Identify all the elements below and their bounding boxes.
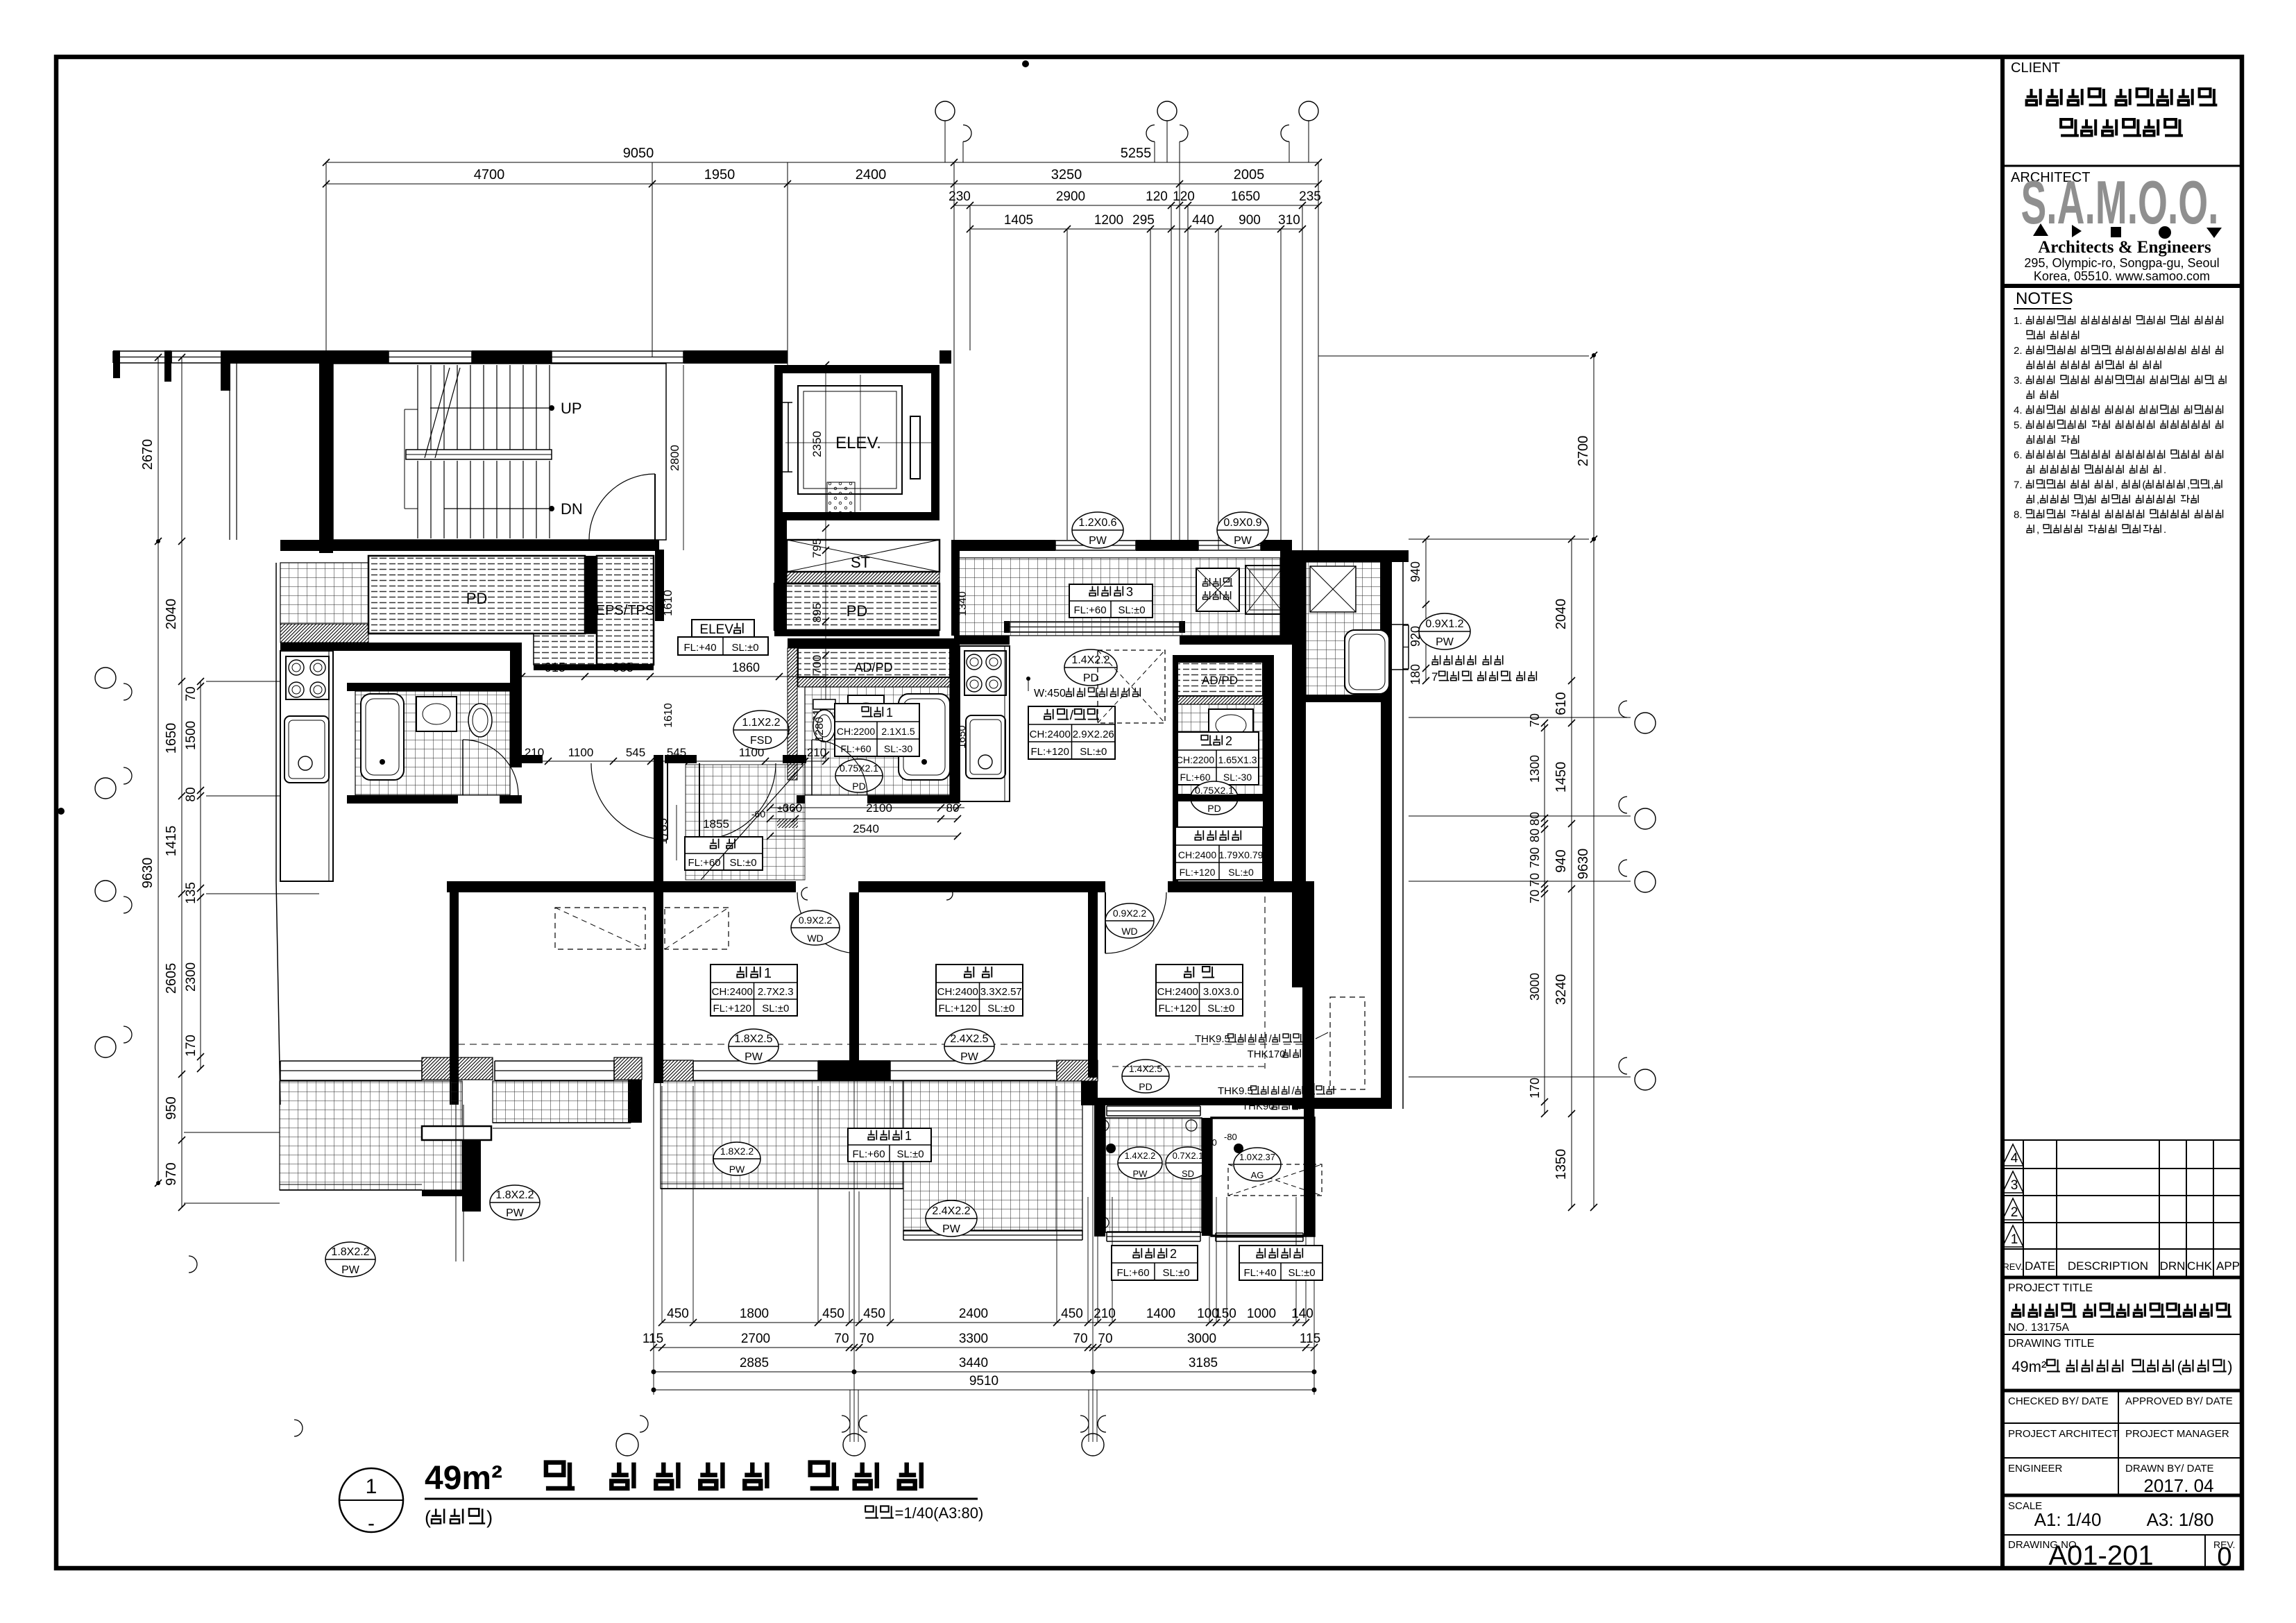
svg-text:NO. 13175A: NO. 13175A [2008,1322,2069,1334]
svg-text:295: 295 [1132,213,1155,228]
svg-text:1.4X2.2: 1.4X2.2 [1071,654,1109,666]
svg-text:1.: 1. [2014,315,2023,327]
svg-text:FL:+60: FL:+60 [1180,772,1211,783]
svg-text:THK170: THK170 [1248,1048,1286,1060]
svg-text:295, Olympic-ro, Songpa-gu, Se: 295, Olympic-ro, Songpa-gu, Seoul [2024,256,2219,270]
svg-text:=1/40(A3:80): =1/40(A3:80) [895,1504,984,1522]
svg-text:150: 150 [1214,1307,1236,1321]
svg-text:-: - [368,1512,375,1535]
svg-text:0.9X1.2: 0.9X1.2 [1425,618,1463,630]
svg-text:PW: PW [729,1164,745,1175]
svg-text:W:450: W:450 [1034,688,1066,699]
svg-text:CH:2200: CH:2200 [837,726,875,737]
svg-text:APP: APP [2216,1259,2240,1273]
svg-text:4700: 4700 [474,167,505,182]
svg-text:1.0X2.37: 1.0X2.37 [1239,1152,1275,1162]
svg-text:CH:2400: CH:2400 [1157,986,1198,998]
svg-text:,: , [2036,524,2039,536]
svg-text:2540: 2540 [853,822,879,835]
svg-text:1: 1 [2011,1232,2018,1247]
svg-text:1650: 1650 [164,723,179,754]
svg-text:1450: 1450 [1554,762,1569,793]
svg-text:0: 0 [2217,1543,2231,1572]
svg-text:DRN: DRN [2160,1259,2186,1273]
svg-text:2.1X1.5: 2.1X1.5 [881,726,915,737]
svg-text:450: 450 [1061,1307,1083,1321]
svg-text:70: 70 [184,686,198,701]
svg-text:A1: 1/40: A1: 1/40 [2034,1509,2102,1530]
svg-text:PD: PD [1207,803,1221,814]
svg-text:CH:2200: CH:2200 [1176,754,1214,765]
svg-text:PROJECT TITLE: PROJECT TITLE [2008,1282,2093,1294]
svg-text:2: 2 [1225,734,1232,748]
svg-text:3: 3 [2011,1178,2018,1193]
svg-text:0.7X2.1: 0.7X2.1 [1173,1150,1204,1161]
svg-text:FL:+60: FL:+60 [841,743,871,754]
svg-text:DESCRIPTION: DESCRIPTION [2068,1259,2148,1273]
svg-text:A3: 1/80: A3: 1/80 [2147,1509,2214,1530]
svg-text:1.4X2.2: 1.4X2.2 [1125,1150,1156,1161]
svg-text:2400: 2400 [856,167,887,182]
svg-text:SL:±0: SL:±0 [1207,1003,1234,1014]
svg-text:935: 935 [613,661,633,674]
svg-text:2.: 2. [2014,345,2023,357]
svg-text:S.A.M.O.O.: S.A.M.O.O. [2021,168,2219,237]
svg-text:230: 230 [949,189,971,204]
svg-text:80: 80 [1528,829,1542,842]
svg-text:9050: 9050 [623,146,654,161]
svg-text:9630: 9630 [1576,849,1591,880]
svg-text:-80: -80 [1224,1132,1237,1142]
svg-text:6.: 6. [2014,450,2023,461]
svg-text:1415: 1415 [164,826,179,857]
svg-text:3000: 3000 [1528,973,1542,1001]
svg-text:PW: PW [341,1264,360,1276]
svg-text:7.: 7. [2014,479,2023,491]
svg-text:CHK: CHK [2187,1259,2213,1273]
svg-text:PD: PD [852,781,865,792]
svg-text:70: 70 [859,1332,874,1346]
svg-text:795: 795 [810,538,824,558]
svg-text:3.: 3. [2014,375,2023,386]
svg-text:THK9.5: THK9.5 [1218,1085,1253,1097]
svg-text:970: 970 [164,1162,179,1185]
svg-text:): ) [486,1507,493,1528]
svg-text:/: / [1070,708,1074,723]
svg-text:PW: PW [1436,636,1454,648]
svg-text:FL:+40: FL:+40 [1243,1267,1276,1279]
svg-text:EPS/TPS: EPS/TPS [596,603,654,618]
svg-text:2040: 2040 [1554,599,1569,630]
svg-text:3.3X2.57: 3.3X2.57 [980,986,1022,998]
svg-text:FL:+60: FL:+60 [1116,1267,1149,1279]
svg-text:SD: SD [1182,1169,1194,1179]
svg-text:135: 135 [184,882,198,904]
svg-text:2885: 2885 [740,1356,769,1370]
svg-text:1860: 1860 [732,661,760,674]
svg-text:): ) [2084,494,2088,506]
svg-text:3: 3 [1126,585,1133,599]
svg-text:1.1X2.2: 1.1X2.2 [742,717,780,729]
svg-text:FL:+120: FL:+120 [1031,746,1069,758]
svg-text:1950: 1950 [704,167,735,182]
svg-text:235: 235 [1299,189,1321,204]
svg-text:,: , [2211,479,2213,491]
svg-text:PW: PW [942,1223,961,1235]
svg-text:940: 940 [1554,849,1569,872]
svg-text:PW: PW [1133,1169,1148,1179]
svg-text:1.8X2.2: 1.8X2.2 [720,1146,754,1157]
svg-text:REV.: REV. [2002,1261,2023,1272]
svg-text:3000: 3000 [1187,1332,1216,1346]
svg-text:180: 180 [1409,664,1422,685]
svg-text:CH:2400: CH:2400 [1030,729,1071,740]
svg-text:895: 895 [810,603,824,622]
svg-text:1: 1 [886,706,893,720]
svg-text:FL:+60: FL:+60 [852,1148,885,1160]
svg-text:DRAWING TITLE: DRAWING TITLE [2008,1338,2094,1350]
svg-text:545: 545 [626,746,645,759]
svg-text:70: 70 [1528,890,1542,903]
svg-text:PW: PW [960,1051,979,1063]
svg-text:SL:±0: SL:±0 [1080,746,1107,758]
svg-text:DATE: DATE [2025,1259,2055,1273]
svg-text:ST: ST [851,554,870,571]
svg-text:AD/PD: AD/PD [854,661,892,674]
svg-text:PW: PW [506,1207,525,1219]
svg-text:545: 545 [667,746,686,759]
svg-text:PD: PD [1083,672,1098,684]
svg-text:1.4X2.5: 1.4X2.5 [1129,1063,1162,1074]
svg-text:PW: PW [1089,535,1107,547]
svg-text:FL:+120: FL:+120 [1159,1003,1197,1014]
svg-text:450: 450 [667,1307,689,1321]
svg-text:SL:±0: SL:±0 [896,1148,924,1160]
svg-text:SL:±0: SL:±0 [729,857,756,869]
svg-text:915: 915 [545,661,566,674]
svg-text:UP: UP [561,400,582,417]
svg-text:,: , [2187,479,2190,491]
svg-text:1: 1 [366,1475,377,1498]
svg-text:3300: 3300 [959,1332,988,1346]
svg-text:0.75X2.1: 0.75X2.1 [1195,785,1234,796]
svg-text:2900: 2900 [1056,189,1085,204]
svg-text:120: 120 [1173,189,1195,204]
svg-text:1.2X0.6: 1.2X0.6 [1078,517,1116,529]
svg-text:2.7X2.3: 2.7X2.3 [758,986,794,998]
svg-text:SL:-30: SL:-30 [1223,772,1252,783]
svg-text:4: 4 [2011,1151,2018,1166]
svg-text:SL:±0: SL:±0 [762,1003,789,1014]
svg-text:ELEV.: ELEV. [699,622,735,637]
svg-text:FL:+120: FL:+120 [939,1003,977,1014]
svg-text:3.0X3.0: 3.0X3.0 [1203,986,1239,998]
svg-text:1.79X0.79: 1.79X0.79 [1219,849,1264,860]
svg-text:4.: 4. [2014,405,2023,416]
svg-text:CH:2400: CH:2400 [937,986,978,998]
svg-text:440: 440 [1192,213,1214,228]
svg-text:80: 80 [184,787,198,801]
svg-text:70: 70 [1098,1332,1112,1346]
svg-text:FL:+40: FL:+40 [683,642,716,654]
svg-text:140: 140 [1291,1307,1313,1321]
svg-text:1610: 1610 [661,590,674,616]
svg-text:PW: PW [1234,535,1252,547]
svg-text:2040: 2040 [164,599,179,630]
svg-text:2350: 2350 [810,431,824,457]
svg-text:AD/PD: AD/PD [1202,674,1238,687]
svg-text:170: 170 [184,1035,198,1057]
svg-text:70: 70 [1073,1332,1087,1346]
svg-text:310: 310 [1278,213,1300,228]
svg-text:1300: 1300 [1528,755,1542,783]
svg-text:2: 2 [1170,1247,1177,1261]
svg-text:1500: 1500 [184,721,198,750]
svg-text:49m²: 49m² [425,1460,502,1497]
svg-text:1405: 1405 [1004,213,1033,228]
svg-text:115: 115 [643,1332,663,1346]
svg-text:SL:±0: SL:±0 [1118,604,1145,616]
svg-text:2400: 2400 [959,1307,988,1321]
svg-text:2.9X2.26: 2.9X2.26 [1073,729,1114,740]
svg-text:APPROVED BY/ DATE: APPROVED BY/ DATE [2125,1395,2233,1407]
svg-text:115: 115 [1300,1332,1320,1346]
svg-text:2605: 2605 [164,963,179,994]
svg-text:SL:±0: SL:±0 [987,1003,1014,1014]
svg-text:2017. 04: 2017. 04 [2143,1475,2213,1496]
svg-text:WD: WD [807,933,823,944]
svg-text:1610: 1610 [663,703,674,728]
svg-text:3440: 3440 [959,1356,988,1370]
svg-text:AG: AG [1251,1170,1264,1180]
svg-text:(: ( [425,1507,431,1528]
svg-text:1200: 1200 [1094,213,1123,228]
svg-text:2700: 2700 [741,1332,770,1346]
svg-text:940: 940 [1409,561,1422,582]
svg-text:9510: 9510 [969,1374,998,1388]
svg-text:3240: 3240 [1554,974,1569,1005]
svg-text:3185: 3185 [1189,1356,1218,1370]
svg-text:1280: 1280 [814,717,826,742]
svg-text:2005: 2005 [1234,167,1265,182]
svg-text:SL:±0: SL:±0 [1288,1267,1315,1279]
svg-text:450: 450 [822,1307,844,1321]
svg-text:2.4X2.5: 2.4X2.5 [950,1033,988,1045]
svg-text:Architects & Engineers: Architects & Engineers [2038,238,2211,257]
svg-text:2: 2 [2011,1205,2018,1220]
svg-text:A01-201: A01-201 [2048,1540,2153,1571]
svg-text:SL:±0: SL:±0 [731,642,758,654]
svg-text:5255: 5255 [1121,146,1152,161]
svg-text:FL:+120: FL:+120 [713,1003,751,1014]
svg-text:450: 450 [863,1307,885,1321]
svg-text:70: 70 [1528,873,1542,887]
svg-text:1.8X2.5: 1.8X2.5 [734,1033,772,1045]
svg-text:PW: PW [745,1051,763,1063]
svg-text:0.9X2.2: 0.9X2.2 [799,915,832,926]
svg-text:1.65X1.3: 1.65X1.3 [1218,754,1257,765]
svg-text:210: 210 [525,746,544,759]
svg-text:1650: 1650 [956,725,968,748]
svg-text:PD: PD [1139,1081,1152,1092]
svg-text:2700: 2700 [1576,436,1591,467]
svg-text:.: . [2163,524,2166,536]
svg-text:0.9X0.9: 0.9X0.9 [1223,517,1261,529]
svg-text:2800: 2800 [668,445,681,471]
svg-text:,: , [2036,494,2039,506]
svg-text:.: . [2163,464,2166,476]
svg-text:PD: PD [466,590,488,607]
svg-text:(: ( [2142,479,2145,491]
svg-text:70: 70 [1528,713,1542,727]
svg-text:3250: 3250 [1051,167,1082,182]
svg-text:1100: 1100 [568,746,594,759]
svg-text:9630: 9630 [140,858,155,889]
svg-text:PROJECT MANAGER: PROJECT MANAGER [2125,1428,2229,1440]
svg-text:(: ( [2177,1358,2183,1375]
svg-text:2300: 2300 [184,962,198,992]
svg-text:1400: 1400 [1146,1307,1175,1321]
svg-text:,: , [2115,479,2118,491]
svg-text:1.8X2.2: 1.8X2.2 [495,1189,534,1201]
svg-text:1.8X2.2: 1.8X2.2 [331,1246,369,1258]
svg-text:Korea, 05510. www.samoo.com: Korea, 05510. www.samoo.com [2034,269,2210,283]
svg-text:FL:+120: FL:+120 [1180,867,1216,878]
svg-text:1800: 1800 [740,1307,769,1321]
svg-text:0.9X2.2: 0.9X2.2 [1113,908,1146,919]
svg-text:950: 950 [164,1096,179,1119]
svg-text:1: 1 [764,966,772,981]
svg-text:700: 700 [951,654,963,671]
svg-text:0.75X2.1: 0.75X2.1 [840,763,878,774]
svg-text:THK9.5: THK9.5 [1195,1033,1230,1045]
svg-text:CH:2400: CH:2400 [1178,849,1216,860]
svg-text:80: 80 [1528,812,1542,826]
svg-text:1855: 1855 [703,817,729,831]
svg-text:SL:±0: SL:±0 [1162,1267,1189,1279]
svg-text:1: 1 [905,1129,912,1143]
svg-text:610: 610 [1554,692,1569,715]
svg-text:120: 120 [1146,189,1168,204]
svg-text:790: 790 [1528,847,1542,868]
svg-text:ELEV.: ELEV. [835,434,881,452]
svg-text:SL:-30: SL:-30 [884,743,912,754]
svg-text:CLIENT: CLIENT [2011,60,2060,76]
svg-text:2.4X2.2: 2.4X2.2 [932,1205,970,1217]
svg-text:): ) [2227,1358,2232,1375]
svg-text:1340: 1340 [957,591,969,616]
svg-text:CH:2400: CH:2400 [712,986,753,998]
svg-text:170: 170 [1528,1078,1542,1098]
svg-text:PD: PD [847,602,868,620]
svg-text:FL:+60: FL:+60 [1073,604,1106,616]
svg-text:49m²: 49m² [2012,1358,2046,1375]
svg-text:7: 7 [1431,670,1438,683]
svg-text:5.: 5. [2014,420,2023,432]
svg-text:8.: 8. [2014,509,2023,521]
svg-text:1350: 1350 [1554,1149,1569,1180]
svg-text:DRAWN BY/ DATE: DRAWN BY/ DATE [2125,1463,2214,1475]
svg-text:2670: 2670 [140,439,155,470]
svg-text:CHECKED BY/ DATE: CHECKED BY/ DATE [2008,1395,2109,1407]
svg-text:THK90: THK90 [1242,1101,1275,1112]
svg-text:WD: WD [1121,926,1137,937]
svg-text:SL:±0: SL:±0 [1228,867,1254,878]
svg-text:70: 70 [834,1332,849,1346]
svg-text:ENGINEER: ENGINEER [2008,1463,2063,1475]
svg-text:NOTES: NOTES [2016,289,2073,308]
svg-text:DN: DN [561,500,583,518]
svg-text:900: 900 [1239,213,1261,228]
svg-text:1650: 1650 [1231,189,1260,204]
svg-text:1000: 1000 [1247,1307,1276,1321]
svg-text:FSD: FSD [750,735,772,747]
svg-text:PROJECT ARCHITECT: PROJECT ARCHITECT [2008,1428,2118,1440]
